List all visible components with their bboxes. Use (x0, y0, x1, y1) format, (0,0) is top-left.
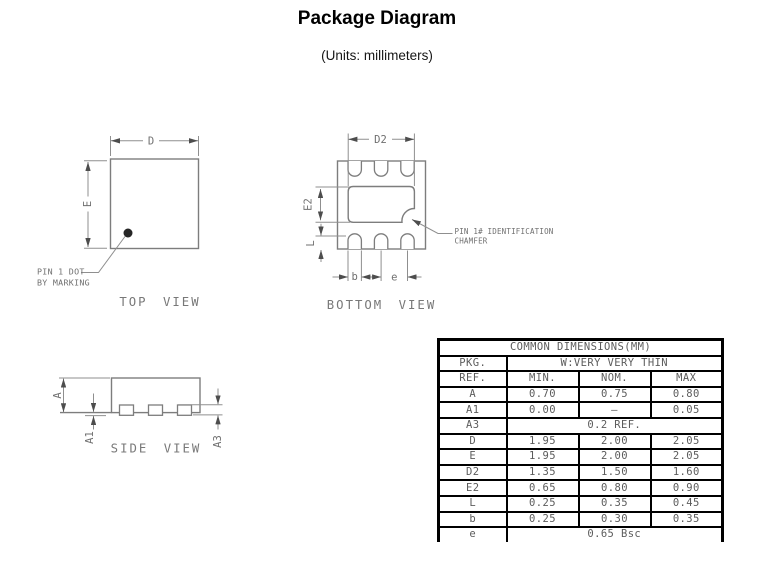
side-view-dim-a: A (52, 378, 110, 412)
top-view-dim-d: D (111, 136, 199, 157)
bottom-view-dim-e2: E2 (303, 187, 351, 222)
min-cell: 0.25 (507, 512, 579, 528)
col-header-nom: NOM. (579, 371, 651, 387)
ref-cell: E2 (439, 480, 507, 496)
dim-label-e: E (82, 201, 94, 207)
max-cell: 0.45 (651, 496, 723, 512)
bottom-view-dim-b-e: b e (333, 251, 422, 284)
min-cell: 1.95 (507, 449, 579, 465)
min-cell: 1.95 (507, 434, 579, 450)
chamfer-note-line2: CHAMFER (455, 237, 488, 246)
table-title-cell: COMMON DIMENSIONS(MM) (439, 340, 723, 356)
table-row: b 0.25 0.30 0.35 (439, 512, 723, 528)
min-cell: 0.00 (507, 402, 579, 418)
dim-label-a1: A1 (84, 431, 96, 444)
span-cell: 0.65 Bsc (507, 527, 723, 542)
pkg-label-cell: PKG. (439, 356, 507, 372)
nom-cell: 0.75 (579, 387, 651, 403)
top-view-dim-e: E (82, 161, 107, 248)
table-row: D 1.95 2.00 2.05 (439, 434, 723, 450)
side-view-label: SIDE VIEW (111, 442, 202, 456)
bottom-view: D2 E2 L b e (303, 134, 554, 313)
top-view-package-body (111, 159, 199, 249)
table-row: E 1.95 2.00 2.05 (439, 449, 723, 465)
dim-label-a: A (52, 392, 64, 399)
table-row: A 0.70 0.75 0.80 (439, 387, 723, 403)
chamfer-note-line1: PIN 1# IDENTIFICATION (455, 227, 554, 236)
bottom-view-bottom-pads (348, 234, 414, 249)
side-view-dim-a3: A3 (178, 389, 224, 448)
max-cell: 0.05 (651, 402, 723, 418)
nom-cell: 0.30 (579, 512, 651, 528)
max-cell: 0.80 (651, 387, 723, 403)
max-cell: 1.60 (651, 465, 723, 481)
table-row-pkg: PKG. W:VERY VERY THIN (439, 356, 723, 372)
bottom-view-chamfer-note: PIN 1# IDENTIFICATION CHAMFER (412, 220, 554, 246)
table-row: e 0.65 Bsc (439, 527, 723, 542)
ref-cell: e (439, 527, 507, 542)
col-header-min: MIN. (507, 371, 579, 387)
min-cell: 0.65 (507, 480, 579, 496)
ref-cell: A3 (439, 418, 507, 434)
table-row: A1 0.00 – 0.05 (439, 402, 723, 418)
nom-cell: 2.00 (579, 449, 651, 465)
col-header-max: MAX (651, 371, 723, 387)
table-row: A3 0.2 REF. (439, 418, 723, 434)
dim-label-d: D (148, 136, 154, 148)
dim-label-e2: E2 (303, 198, 315, 211)
ref-cell: L (439, 496, 507, 512)
min-cell: 0.70 (507, 387, 579, 403)
min-cell: 0.25 (507, 496, 579, 512)
top-view: D E PIN 1 DOT BY MARKING TOP VIEW (37, 136, 201, 310)
ref-cell: E (439, 449, 507, 465)
bottom-view-label: BOTTOM VIEW (327, 298, 436, 312)
span-cell: 0.2 REF. (507, 418, 723, 434)
table-row: E2 0.65 0.80 0.90 (439, 480, 723, 496)
ref-cell: A1 (439, 402, 507, 418)
dim-label-e-pitch: e (391, 272, 397, 284)
bottom-view-top-pads (348, 161, 414, 176)
nom-cell: 0.80 (579, 480, 651, 496)
max-cell: 2.05 (651, 449, 723, 465)
nom-cell: – (579, 402, 651, 418)
dim-label-b: b (352, 271, 358, 283)
table-row-header: REF. MIN. NOM. MAX (439, 371, 723, 387)
max-cell: 0.90 (651, 480, 723, 496)
bottom-view-dim-l: L (305, 224, 346, 262)
side-view-dim-a1: A1 (84, 394, 106, 444)
dim-label-a3: A3 (212, 435, 224, 448)
top-view-label: TOP VIEW (119, 295, 200, 309)
ref-cell: A (439, 387, 507, 403)
dim-label-d2: D2 (374, 134, 387, 146)
max-cell: 0.35 (651, 512, 723, 528)
pin1-note-line1: PIN 1 DOT (37, 267, 85, 277)
side-view-pins (120, 405, 192, 415)
pin1-note-line2: BY MARKING (37, 278, 90, 288)
dim-label-l: L (305, 240, 317, 246)
col-header-ref: REF. (439, 371, 507, 387)
pkg-value-cell: W:VERY VERY THIN (507, 356, 723, 372)
top-view-pin1-note: PIN 1 DOT BY MARKING (37, 237, 125, 288)
min-cell: 1.35 (507, 465, 579, 481)
nom-cell: 1.50 (579, 465, 651, 481)
ref-cell: b (439, 512, 507, 528)
table-row: D2 1.35 1.50 1.60 (439, 465, 723, 481)
ref-cell: D2 (439, 465, 507, 481)
bottom-view-dim-d2: D2 (348, 134, 414, 187)
common-dimensions-table: COMMON DIMENSIONS(MM) PKG. W:VERY VERY T… (437, 338, 724, 542)
nom-cell: 2.00 (579, 434, 651, 450)
pin1-dot (124, 229, 133, 238)
side-view: A A1 A3 SIDE VIEW (52, 378, 224, 456)
table-row-title: COMMON DIMENSIONS(MM) (439, 340, 723, 356)
max-cell: 2.05 (651, 434, 723, 450)
ref-cell: D (439, 434, 507, 450)
table-row: L 0.25 0.35 0.45 (439, 496, 723, 512)
nom-cell: 0.35 (579, 496, 651, 512)
exposed-pad (348, 187, 414, 223)
